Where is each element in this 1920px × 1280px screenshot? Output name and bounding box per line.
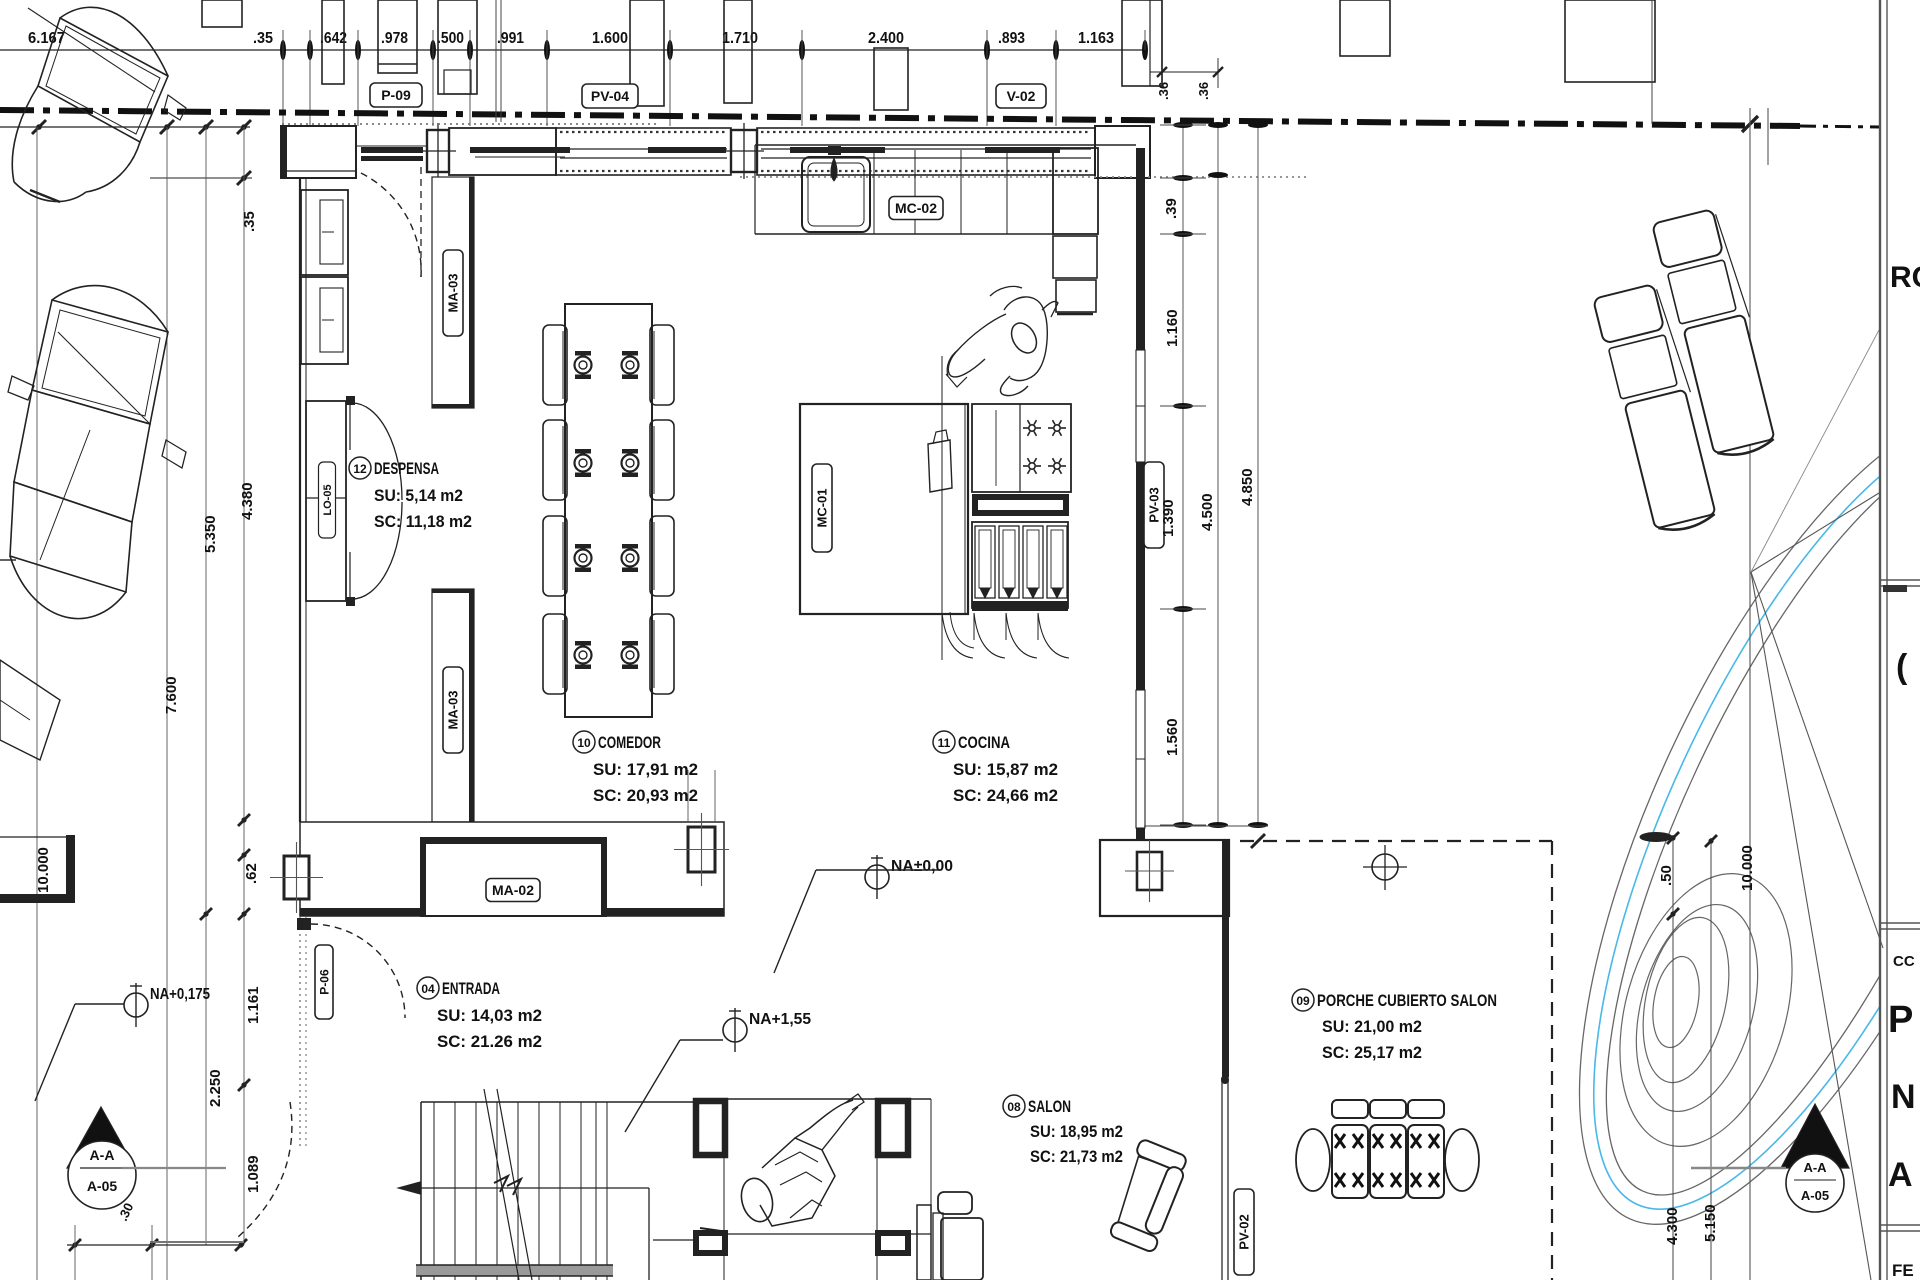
- svg-text:FE: FE: [1892, 1261, 1914, 1280]
- svg-text:P-06: P-06: [317, 969, 331, 995]
- svg-text:.35: .35: [241, 211, 258, 232]
- svg-text:4.500: 4.500: [1199, 493, 1216, 531]
- svg-text:.642: .642: [320, 30, 347, 47]
- svg-text:SC: 11,18 m2: SC: 11,18 m2: [374, 512, 472, 531]
- svg-text:1.160: 1.160: [1164, 309, 1181, 347]
- svg-text:2.400: 2.400: [868, 30, 904, 47]
- svg-text:1.161: 1.161: [245, 986, 262, 1024]
- svg-text:PORCHE CUBIERTO SALON: PORCHE CUBIERTO SALON: [1317, 991, 1497, 1010]
- svg-text:1.600: 1.600: [592, 30, 628, 47]
- svg-text:N: N: [1891, 1078, 1916, 1116]
- svg-text:SALON: SALON: [1028, 1097, 1071, 1116]
- svg-text:.36: .36: [1196, 82, 1211, 100]
- svg-text:MC-02: MC-02: [895, 200, 937, 216]
- svg-text:SU: 17,91 m2: SU: 17,91 m2: [593, 760, 698, 779]
- svg-text:SU: 15,87 m2: SU: 15,87 m2: [953, 760, 1058, 779]
- svg-text:SU: 5,14 m2: SU: 5,14 m2: [374, 486, 463, 505]
- svg-text:LO-05: LO-05: [322, 484, 334, 515]
- svg-text:10.000: 10.000: [1739, 845, 1756, 891]
- svg-text:SC: 21,73 m2: SC: 21,73 m2: [1030, 1147, 1123, 1166]
- svg-text:11: 11: [938, 736, 951, 750]
- svg-text:DESPENSA: DESPENSA: [374, 459, 439, 478]
- svg-text:CC: CC: [1893, 953, 1915, 970]
- svg-text:A: A: [1888, 1156, 1913, 1194]
- svg-text:P: P: [1888, 999, 1913, 1041]
- svg-text:NA+1,55: NA+1,55: [749, 1011, 811, 1028]
- svg-text:P-09: P-09: [381, 87, 411, 103]
- svg-text:4.850: 4.850: [1239, 468, 1256, 506]
- svg-text:5.350: 5.350: [202, 515, 219, 553]
- svg-text:.62: .62: [243, 863, 260, 884]
- svg-text:MA-02: MA-02: [492, 882, 534, 898]
- svg-text:V-02: V-02: [1007, 88, 1036, 104]
- svg-text:5.150: 5.150: [1702, 1204, 1719, 1242]
- svg-text:1.560: 1.560: [1164, 718, 1181, 756]
- svg-text:10.000: 10.000: [35, 847, 52, 893]
- svg-text:.50: .50: [1658, 865, 1675, 886]
- svg-text:1.390: 1.390: [1160, 499, 1177, 537]
- svg-text:PV-02: PV-02: [1237, 1214, 1252, 1249]
- svg-text:2.250: 2.250: [207, 1069, 224, 1107]
- svg-text:MA-03: MA-03: [446, 273, 461, 312]
- svg-text:04: 04: [421, 982, 435, 996]
- svg-text:(: (: [1896, 648, 1908, 686]
- svg-text:.893: .893: [998, 30, 1025, 47]
- svg-text:.35: .35: [253, 30, 273, 47]
- svg-text:RO: RO: [1890, 261, 1920, 294]
- svg-text:NA+0,175: NA+0,175: [150, 986, 210, 1003]
- svg-text:A-05: A-05: [1801, 1188, 1829, 1203]
- svg-text:A-A: A-A: [90, 1147, 115, 1163]
- svg-text:PV-04: PV-04: [591, 88, 629, 104]
- svg-text:SU: 14,03 m2: SU: 14,03 m2: [437, 1006, 542, 1025]
- svg-text:.978: .978: [381, 30, 408, 47]
- svg-text:NA±0,00: NA±0,00: [891, 858, 953, 875]
- svg-text:4.380: 4.380: [239, 482, 256, 520]
- svg-text:A-05: A-05: [87, 1178, 118, 1194]
- svg-text:COCINA: COCINA: [958, 733, 1010, 752]
- svg-text:4.300: 4.300: [1664, 1207, 1681, 1245]
- svg-text:A-A: A-A: [1803, 1160, 1827, 1175]
- svg-text:SC: 20,93 m2: SC: 20,93 m2: [593, 786, 698, 805]
- svg-text:SC: 24,66 m2: SC: 24,66 m2: [953, 786, 1058, 805]
- svg-text:SC: 21.26 m2: SC: 21.26 m2: [437, 1032, 542, 1051]
- svg-text:SU: 18,95 m2: SU: 18,95 m2: [1030, 1122, 1123, 1141]
- svg-text:.36: .36: [1156, 82, 1171, 100]
- svg-text:08: 08: [1007, 1100, 1021, 1114]
- svg-text:1.163: 1.163: [1078, 30, 1114, 47]
- svg-text:ENTRADA: ENTRADA: [442, 979, 500, 998]
- svg-text:MC-01: MC-01: [815, 488, 830, 527]
- svg-text:.39: .39: [1163, 198, 1180, 219]
- svg-text:COMEDOR: COMEDOR: [598, 733, 661, 752]
- svg-text:MA-03: MA-03: [446, 690, 461, 729]
- svg-text:10: 10: [577, 736, 591, 750]
- svg-text:SC: 25,17 m2: SC: 25,17 m2: [1322, 1043, 1422, 1062]
- svg-text:7.600: 7.600: [163, 676, 180, 714]
- svg-text:09: 09: [1296, 994, 1310, 1008]
- svg-text:12: 12: [353, 462, 367, 476]
- svg-text:.500: .500: [437, 30, 464, 47]
- svg-text:SU: 21,00 m2: SU: 21,00 m2: [1322, 1017, 1422, 1036]
- svg-text:1.089: 1.089: [245, 1155, 262, 1193]
